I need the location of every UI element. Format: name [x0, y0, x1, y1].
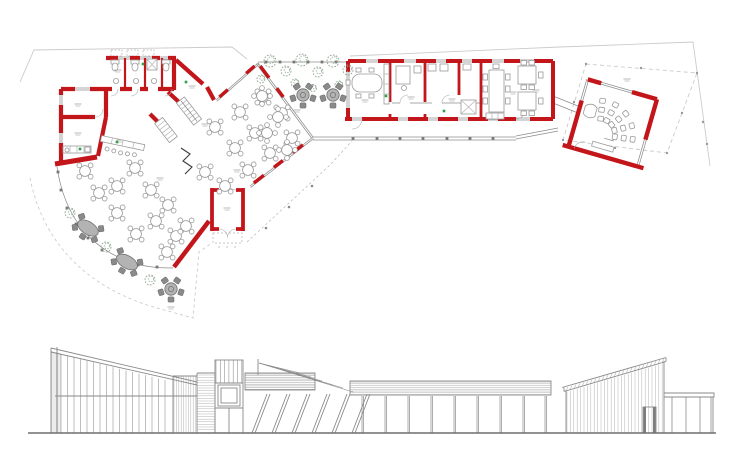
round-table [207, 119, 223, 135]
column [376, 137, 379, 140]
room-label [157, 178, 164, 180]
canopy-column [265, 227, 268, 230]
column [492, 137, 495, 140]
room-label [624, 79, 631, 81]
round-table [227, 140, 243, 156]
roof-post [562, 139, 564, 141]
room-label [294, 110, 301, 112]
round-table [159, 244, 175, 260]
column [469, 137, 472, 140]
column [422, 137, 425, 140]
room-label [362, 100, 369, 102]
column [293, 61, 296, 64]
roof-post [666, 152, 668, 154]
room-label [510, 92, 517, 94]
glass-facade-posts [219, 66, 303, 183]
seminar-chair [598, 116, 604, 121]
tree [65, 208, 75, 218]
equipment-accent [142, 63, 145, 66]
column [57, 171, 60, 174]
column [87, 237, 90, 240]
round-table [127, 160, 143, 176]
drawing-sheet [0, 0, 743, 473]
seminar-chair [612, 101, 619, 108]
piano [583, 103, 598, 120]
column [279, 61, 282, 64]
roof-post [640, 67, 642, 69]
column [156, 266, 159, 269]
column [399, 137, 402, 140]
roof-post [614, 147, 616, 149]
room-label [75, 133, 82, 135]
room-label [202, 124, 209, 126]
seminar-chair [630, 136, 636, 142]
roof-post [702, 121, 704, 123]
lectern-table [592, 141, 615, 152]
round-table [160, 197, 176, 213]
tree [313, 67, 323, 77]
terrace-oval-table [107, 245, 145, 280]
outdoor-table [290, 83, 317, 108]
section-cut-line [181, 148, 192, 174]
room-labels [75, 70, 631, 309]
round-table [197, 164, 213, 180]
outdoor-table [158, 277, 185, 302]
column [321, 61, 324, 64]
tree [296, 54, 308, 66]
roof-post [706, 143, 708, 145]
room-label [449, 99, 456, 101]
round-table [109, 205, 125, 221]
room-label [234, 170, 241, 172]
round-table [77, 163, 93, 179]
roof-post [696, 72, 698, 74]
round-table [128, 226, 144, 242]
terrace-end-wall [174, 221, 209, 267]
tree [145, 275, 155, 285]
round-table [148, 213, 164, 229]
seminar-chair [620, 125, 626, 132]
colonnade-ticks [57, 61, 709, 269]
round-table [143, 182, 159, 198]
elevation-generated [52, 351, 711, 433]
seminar-chair [607, 109, 614, 116]
room-label [189, 86, 196, 88]
entry-platform [213, 233, 242, 247]
seminar-chair [622, 110, 629, 117]
seminar-chair [599, 98, 605, 103]
tree [281, 66, 291, 76]
front-elevation [28, 347, 716, 433]
room-label [168, 307, 175, 309]
buffet-counter [99, 136, 145, 160]
round-table [240, 162, 256, 178]
canopy-column [311, 185, 314, 188]
round-table [109, 178, 125, 194]
seminar-chair [599, 107, 605, 112]
tree [257, 75, 265, 83]
equipment-accent [385, 95, 388, 98]
seminar-chair [621, 135, 627, 141]
architectural-drawing [0, 0, 743, 473]
right-building [562, 358, 666, 434]
column [446, 137, 449, 140]
column [60, 189, 63, 192]
roof-post [681, 112, 683, 114]
equipment-accent [79, 148, 82, 151]
floor-plan [20, 42, 710, 318]
room-label [533, 90, 540, 92]
canopy-edge [247, 141, 352, 242]
roof-post [573, 101, 575, 103]
round-table [217, 178, 233, 194]
round-table [91, 185, 107, 201]
canopy-column [288, 206, 291, 209]
office-furniture [346, 64, 476, 114]
column [352, 137, 355, 140]
roof-post [585, 63, 587, 65]
kitchen-fixtures [63, 146, 91, 153]
room-label [224, 208, 231, 210]
seminar-chair [612, 134, 618, 140]
tree [327, 55, 339, 67]
seminar-chair [611, 127, 617, 134]
seminar-chair [615, 116, 622, 123]
pergola-beam [664, 393, 714, 433]
stair-ramp [155, 97, 202, 143]
room-label [75, 104, 82, 106]
column [265, 61, 268, 64]
pavilion-chairs [590, 97, 644, 145]
seminar-chair [629, 122, 635, 129]
equipment-accent [443, 110, 446, 113]
outdoor-table [320, 83, 347, 108]
round-table [232, 104, 248, 120]
equipment-accent [116, 141, 119, 144]
round-table [178, 218, 194, 234]
equipment-accent [185, 81, 188, 84]
vestibule-walls [212, 188, 243, 231]
elevation-static [28, 347, 716, 433]
skylights [111, 50, 154, 56]
round-table [262, 145, 278, 161]
room-label [408, 97, 415, 99]
